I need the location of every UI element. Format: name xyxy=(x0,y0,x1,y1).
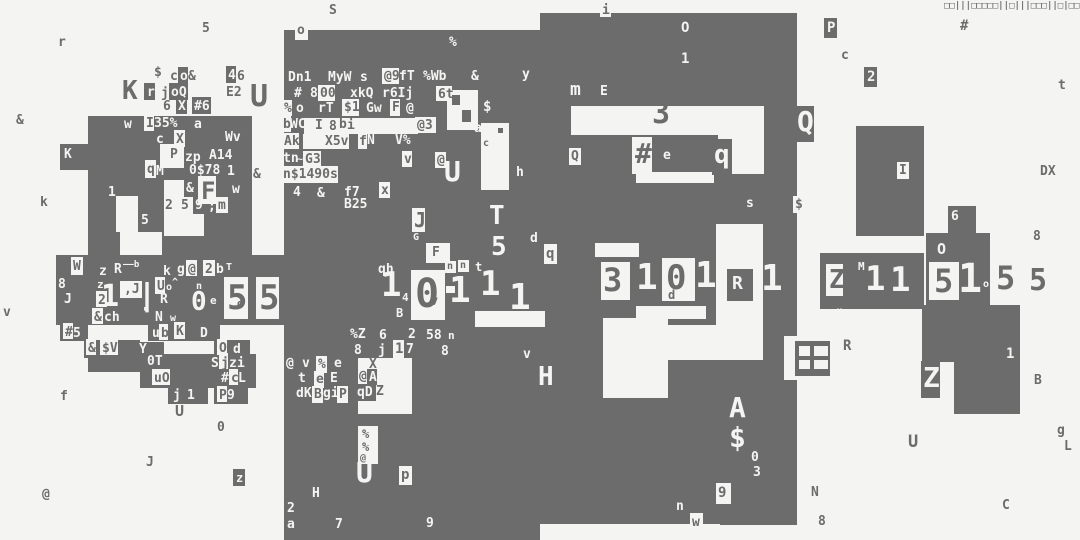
art-glyph: 35% xyxy=(154,117,177,130)
art-glyph: @ xyxy=(359,370,367,383)
art-glyph: # xyxy=(834,308,842,322)
art-glyph: 1 xyxy=(958,259,982,299)
art-glyph: % xyxy=(318,358,326,371)
art-glyph: # xyxy=(221,372,229,385)
art-glyph: O xyxy=(219,342,227,355)
art-glyph: R xyxy=(843,339,851,353)
art-glyph: ch xyxy=(104,311,120,324)
art-glyph: V% xyxy=(395,134,411,147)
art-glyph: 1 xyxy=(509,280,531,316)
art-glyph: I xyxy=(146,117,154,130)
art-glyph: A14 xyxy=(209,149,232,162)
art-glyph: 1 xyxy=(865,262,885,296)
art-glyph: 1 xyxy=(480,267,500,301)
art-glyph: b xyxy=(161,327,169,340)
art-glyph: 9 xyxy=(227,389,235,402)
art-glyph: & xyxy=(94,311,102,324)
art-glyph: 1 xyxy=(1006,347,1014,361)
art-glyph: w xyxy=(692,516,700,529)
art-glyph: t xyxy=(298,372,306,385)
art-glyph: 2 xyxy=(867,70,875,84)
art-glyph: J xyxy=(146,456,154,469)
art-glyph: %Z xyxy=(350,328,366,341)
art-glyph: Y xyxy=(139,343,147,356)
art-glyph: WC xyxy=(290,118,306,131)
art-glyph: ――b xyxy=(123,261,139,270)
art-glyph: x xyxy=(381,184,389,197)
art-glyph: ^ xyxy=(172,278,178,288)
art-glyph: S xyxy=(211,357,219,370)
art-glyph: % xyxy=(449,36,457,49)
art-glyph: q xyxy=(147,163,155,176)
art-glyph: E2 xyxy=(226,86,242,99)
art-glyph: v xyxy=(3,306,11,319)
art-glyph: r xyxy=(147,86,155,99)
art-glyph: X5v xyxy=(325,135,348,148)
art-glyph: i xyxy=(237,357,245,370)
art-glyph: X xyxy=(176,133,184,146)
art-glyph: R xyxy=(160,293,168,306)
art-glyph: a xyxy=(194,118,202,131)
art-glyph: 2 xyxy=(98,294,106,307)
art-glyph: $V xyxy=(102,342,118,355)
art-glyph: b xyxy=(339,118,347,131)
art-glyph: @ xyxy=(286,357,294,370)
art-glyph: 1 xyxy=(187,389,195,402)
art-glyph: n xyxy=(676,500,684,513)
art-glyph: qD xyxy=(357,386,373,399)
art-glyph: 5 xyxy=(202,22,210,35)
art-glyph: uO xyxy=(154,372,170,385)
art-glyph: 8 xyxy=(1033,230,1041,243)
art-glyph: Wv xyxy=(225,131,241,144)
art-glyph: & xyxy=(88,342,96,355)
art-glyph: # xyxy=(294,87,302,100)
art-glyph: 1 xyxy=(695,258,717,294)
art-glyph: m xyxy=(570,81,581,99)
art-glyph: U xyxy=(908,434,918,451)
art-glyph: 5 xyxy=(259,281,279,315)
art-glyph: % xyxy=(284,102,292,115)
art-glyph: A xyxy=(729,394,746,422)
art-glyph: B xyxy=(1034,374,1042,387)
art-glyph: 6t xyxy=(438,88,454,101)
art-glyph: 0$78 xyxy=(189,164,220,177)
art-glyph: d xyxy=(530,232,538,245)
art-glyph: 1 xyxy=(381,268,401,302)
art-glyph: 3 xyxy=(753,466,761,479)
art-glyph: L xyxy=(1064,440,1072,453)
art-glyph: $ xyxy=(483,100,491,114)
art-glyph: K xyxy=(64,148,72,161)
art-glyph: 1 xyxy=(449,273,471,309)
art-glyph: F xyxy=(392,101,400,114)
art-glyph: U xyxy=(356,459,373,487)
art-glyph: H xyxy=(538,364,554,390)
art-glyph: E xyxy=(600,85,608,98)
glyph-layer: r5&kvf@J0US□□|||□□□□□||□|||□□□||□|□□$co&… xyxy=(0,0,1080,540)
art-glyph: 0 xyxy=(191,289,207,315)
art-glyph: f xyxy=(359,135,367,148)
art-glyph: z xyxy=(229,357,237,370)
art-glyph: q xyxy=(546,247,554,261)
art-glyph: a xyxy=(287,518,295,531)
art-glyph: 8 xyxy=(329,120,337,133)
art-glyph: K xyxy=(122,78,138,104)
art-glyph: 3 xyxy=(603,264,622,296)
art-glyph: r xyxy=(58,36,66,49)
art-glyph: M xyxy=(156,165,164,178)
art-glyph: k xyxy=(40,196,48,209)
art-glyph: Dn1 xyxy=(288,71,311,84)
art-glyph: J xyxy=(414,210,426,230)
art-glyph: 1 xyxy=(108,186,116,199)
art-glyph: e xyxy=(334,357,342,370)
art-glyph: D xyxy=(200,327,208,340)
art-glyph: c xyxy=(841,49,849,62)
art-glyph: y xyxy=(432,296,438,306)
art-glyph: z xyxy=(717,259,724,271)
art-glyph: 5 xyxy=(73,327,81,340)
art-glyph: 8 xyxy=(58,278,66,291)
art-glyph: 8 xyxy=(441,345,449,358)
art-glyph: N xyxy=(367,134,375,147)
art-glyph: P xyxy=(339,388,347,401)
art-glyph: Z xyxy=(829,267,845,293)
art-glyph: j xyxy=(173,389,181,402)
art-glyph: K xyxy=(176,325,184,338)
art-glyph: G3 xyxy=(305,153,321,166)
art-glyph: P xyxy=(827,21,835,35)
art-glyph: % xyxy=(362,441,369,453)
art-glyph: H xyxy=(312,487,320,500)
art-glyph: c xyxy=(170,70,178,83)
art-glyph: B xyxy=(396,307,403,319)
art-glyph: b xyxy=(216,263,224,276)
art-glyph: z xyxy=(729,89,737,102)
art-glyph: #6 xyxy=(194,100,210,113)
art-glyph: 4 xyxy=(228,69,236,82)
art-glyph: @ xyxy=(188,263,196,276)
art-glyph: 1 xyxy=(227,165,235,178)
art-glyph: Q xyxy=(571,150,579,163)
art-glyph: n xyxy=(448,330,455,341)
art-glyph: 1 xyxy=(761,261,783,297)
art-glyph: 4 xyxy=(402,292,409,303)
art-glyph: @ xyxy=(406,102,414,115)
art-glyph: 8 xyxy=(818,515,826,528)
art-glyph: N xyxy=(811,486,819,499)
art-glyph: Z xyxy=(376,385,384,398)
art-glyph: y xyxy=(522,68,530,81)
art-glyph: o xyxy=(296,102,304,115)
art-glyph: m xyxy=(218,199,226,212)
art-glyph: @ xyxy=(42,488,50,501)
art-glyph: T xyxy=(489,203,505,229)
art-glyph: e xyxy=(210,295,217,306)
art-glyph: B xyxy=(314,388,322,401)
art-glyph: 5 xyxy=(996,262,1015,294)
art-glyph: i xyxy=(347,119,355,132)
art-glyph: 6 xyxy=(237,70,245,83)
art-glyph: j xyxy=(221,357,229,370)
art-glyph: v xyxy=(523,348,531,361)
art-glyph: U xyxy=(250,82,268,112)
art-glyph: # xyxy=(960,19,968,33)
art-glyph: i xyxy=(602,4,610,17)
art-glyph: 3 xyxy=(652,99,670,129)
art-glyph: U xyxy=(175,404,184,419)
art-glyph: W xyxy=(73,260,81,273)
art-glyph: & xyxy=(471,70,479,83)
art-glyph: R xyxy=(732,275,743,293)
art-glyph: f xyxy=(60,390,68,403)
art-glyph: N xyxy=(155,311,163,324)
art-glyph: 2 xyxy=(408,328,416,341)
art-glyph: fT xyxy=(399,70,415,83)
art-glyph: & xyxy=(16,114,24,127)
art-glyph: %Wb xyxy=(423,70,446,83)
art-glyph: 0 xyxy=(751,451,759,464)
art-glyph: s xyxy=(746,197,754,210)
art-glyph: 9 xyxy=(426,517,434,530)
art-glyph: e xyxy=(316,373,324,386)
art-glyph: s xyxy=(360,71,368,84)
art-glyph: $ xyxy=(154,66,162,79)
art-glyph: 2 xyxy=(287,502,295,515)
art-glyph: h xyxy=(516,166,524,179)
art-glyph: 0 xyxy=(415,274,439,314)
art-glyph: c xyxy=(483,139,489,149)
art-glyph: 1 xyxy=(681,52,689,66)
art-glyph: 0 xyxy=(217,421,225,434)
art-glyph: 9 xyxy=(718,486,726,500)
art-glyph: 1 xyxy=(890,263,910,297)
art-glyph: O xyxy=(681,21,689,35)
art-glyph: U xyxy=(444,158,461,186)
art-glyph: 9 xyxy=(195,199,203,212)
art-glyph: DX xyxy=(1040,165,1056,178)
art-glyph: 58 xyxy=(426,329,442,342)
art-glyph: I xyxy=(315,119,323,132)
art-glyph: 7 xyxy=(406,343,414,356)
art-glyph: p xyxy=(401,468,409,482)
art-glyph: gi xyxy=(323,387,339,400)
art-glyph: n xyxy=(420,262,426,272)
art-glyph: $ xyxy=(795,198,803,211)
art-glyph: k xyxy=(163,265,171,278)
art-glyph: P xyxy=(170,148,178,161)
art-glyph: L xyxy=(238,372,246,385)
art-glyph: o xyxy=(983,280,989,290)
art-glyph: # xyxy=(65,326,73,339)
art-glyph: % xyxy=(362,428,369,440)
art-glyph: O xyxy=(937,242,946,257)
art-glyph: dK xyxy=(296,387,312,400)
art-glyph: Gw xyxy=(366,102,382,115)
art-glyph: & xyxy=(317,187,325,200)
art-glyph: Ak xyxy=(284,135,300,148)
art-glyph: 4 xyxy=(293,186,301,199)
art-glyph: A xyxy=(369,371,377,384)
art-glyph: 8 xyxy=(310,87,318,100)
art-glyph: w xyxy=(124,118,132,131)
art-glyph: & xyxy=(253,168,261,181)
art-glyph: G xyxy=(413,233,419,243)
art-glyph: $1 xyxy=(344,101,360,114)
art-glyph: $ xyxy=(729,424,746,452)
art-glyph: 5 xyxy=(1029,266,1047,296)
art-glyph: o xyxy=(297,24,305,37)
art-glyph: v xyxy=(302,357,310,370)
art-glyph: @3 xyxy=(417,119,433,132)
art-glyph: 1 xyxy=(395,342,403,356)
art-glyph: c xyxy=(156,133,164,146)
art-glyph: I xyxy=(899,164,907,177)
art-glyph: 5 xyxy=(141,214,149,227)
art-glyph: 5 xyxy=(181,199,189,212)
art-glyph: q xyxy=(714,142,730,168)
art-glyph: MyW xyxy=(328,71,351,84)
art-glyph: 0T xyxy=(147,355,163,368)
art-glyph: 6 xyxy=(379,329,387,342)
art-glyph: u xyxy=(152,327,160,340)
art-glyph: ; xyxy=(208,200,216,213)
art-glyph: C xyxy=(1002,499,1010,512)
art-glyph: d xyxy=(237,298,244,309)
art-glyph: 2 xyxy=(205,263,213,276)
art-glyph: @9 xyxy=(384,70,400,83)
art-glyph: j xyxy=(378,344,386,357)
art-glyph: # xyxy=(635,140,652,168)
art-glyph: 5 xyxy=(491,234,507,260)
art-glyph: R xyxy=(114,263,122,276)
art-glyph: w xyxy=(232,183,240,196)
art-glyph: & xyxy=(186,182,194,195)
art-glyph: J xyxy=(64,293,72,306)
art-glyph: z xyxy=(99,265,107,278)
art-glyph: w xyxy=(170,314,176,324)
art-glyph: a xyxy=(474,122,482,135)
art-glyph: v xyxy=(404,153,412,166)
ascii-art-canvas: r5&kvf@J0US□□|||□□□□□||□|||□□□||□|□□$co&… xyxy=(0,0,1080,540)
art-glyph: M xyxy=(858,261,865,272)
art-glyph: g xyxy=(177,263,185,276)
art-glyph: X xyxy=(178,100,186,113)
art-glyph: E xyxy=(330,372,338,385)
art-glyph: n$1490s xyxy=(283,168,338,181)
art-glyph: rT xyxy=(318,102,334,115)
art-glyph: r6Ij xyxy=(382,87,413,100)
art-glyph: F xyxy=(432,246,440,259)
art-glyph: 6 xyxy=(951,210,959,223)
art-glyph: d xyxy=(668,289,675,301)
art-glyph: □□|||□□□□□||□|||□□□||□|□□ xyxy=(944,2,1079,11)
art-glyph: 1 xyxy=(636,260,658,296)
art-glyph: 6 xyxy=(163,100,171,113)
art-glyph: & xyxy=(188,70,196,83)
art-glyph: 00 xyxy=(320,87,336,100)
art-glyph: d xyxy=(233,343,241,356)
art-glyph: S xyxy=(329,4,337,17)
art-glyph: 8 xyxy=(354,344,362,357)
art-glyph: o xyxy=(180,70,188,83)
art-glyph: e xyxy=(663,149,671,162)
art-glyph: g xyxy=(1057,424,1065,437)
art-glyph: P xyxy=(219,389,227,402)
art-glyph: ~ xyxy=(297,155,303,165)
art-glyph: B25 xyxy=(344,198,367,211)
art-glyph: 5 xyxy=(934,265,953,297)
art-glyph: z xyxy=(236,472,243,484)
art-glyph: Z xyxy=(923,364,940,392)
art-glyph: xkQ xyxy=(350,87,373,100)
art-glyph: 7 xyxy=(335,518,343,531)
art-glyph: 2 xyxy=(165,199,173,212)
art-glyph: t xyxy=(1058,79,1066,92)
art-glyph: Q xyxy=(797,108,814,136)
art-glyph: T xyxy=(226,263,232,273)
art-glyph: ' xyxy=(141,307,149,320)
art-glyph: oQ xyxy=(171,86,187,99)
